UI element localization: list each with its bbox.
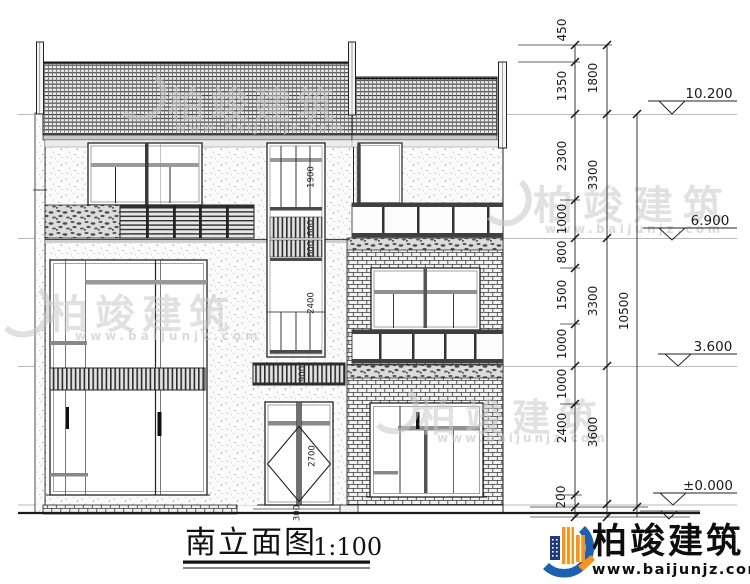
window-2f-right xyxy=(368,268,483,330)
brand-logo: 柏竣建筑 www.baijunjz.com xyxy=(546,521,750,578)
drawing-scale: 1:100 xyxy=(313,533,382,561)
dim-label: 10500 xyxy=(617,292,631,330)
dim-label: 1000 xyxy=(555,204,569,235)
brand-site: www.baijunjz.com xyxy=(592,562,750,578)
dim-label: 3600 xyxy=(586,417,600,448)
dim-label: 1000 xyxy=(555,329,569,360)
window-2f-left xyxy=(86,143,204,205)
balcony-parapet-2f xyxy=(45,205,120,238)
annotation-label: 300 xyxy=(293,505,303,521)
dim-label: 800 xyxy=(555,241,569,264)
dim-chain-3: 10500 xyxy=(617,110,641,517)
annotation-label: 1900 xyxy=(307,166,317,188)
level-label-ground: ±0.000 xyxy=(683,478,733,494)
title-underline-thick xyxy=(183,561,370,564)
entry-door xyxy=(253,402,347,509)
level-label-third: 6.900 xyxy=(691,213,730,229)
dim-label: 3300 xyxy=(586,286,600,317)
dim-label: 1500 xyxy=(555,280,569,311)
elevation-drawing: 柏竣建筑 www.baijunjz.com 柏竣建筑 www.baijunjz.… xyxy=(0,0,750,584)
step-right xyxy=(340,505,358,513)
brand-logo-icon xyxy=(546,527,595,573)
level-markers: 10.200 6.900 3.600 ±0.000 xyxy=(640,86,737,519)
balcony-rail-2f xyxy=(120,205,254,238)
brand-name: 柏竣建筑 xyxy=(592,521,744,562)
glass-rail-2f-right xyxy=(352,330,503,363)
stone-band-upper xyxy=(347,238,503,250)
annotation-label: 2400 xyxy=(307,292,317,314)
door-3f-right xyxy=(358,143,402,205)
elevation-sheet: 柏竣建筑 www.baijunjz.com 柏竣建筑 www.baijunjz.… xyxy=(0,0,750,584)
dim-label: 1000 xyxy=(555,369,569,400)
drawing-title: 南立面图 xyxy=(185,525,317,561)
dim-label: 3300 xyxy=(586,160,600,191)
dim-label: 2300 xyxy=(555,141,569,172)
stone-band-lower xyxy=(347,365,503,378)
glass-rail-3f-right xyxy=(352,203,503,237)
annotation-label: 900 xyxy=(298,366,308,382)
annotation-label: 600 xyxy=(307,220,317,236)
dim-label: 1800 xyxy=(586,63,600,94)
level-label-roof: 10.200 xyxy=(685,86,732,102)
dim-label: 2400 xyxy=(555,413,569,444)
watermark-site: www.baijunjz.com xyxy=(75,329,262,343)
dim-chain-2: 1800 3300 3300 3600 xyxy=(586,41,611,521)
annotation-label: 2700 xyxy=(308,445,318,467)
dim-label: 450 xyxy=(555,19,569,42)
watermark-site: www.baijunjz.com xyxy=(175,121,346,135)
annotation-label: 600 xyxy=(307,241,317,257)
left-pilaster xyxy=(35,113,45,513)
dim-chain-1: 450 1350 2300 1000 800 1500 1000 1000 24… xyxy=(554,19,579,521)
dim-label: 200 xyxy=(554,486,568,509)
watermark-site: www.baijunjz.com xyxy=(437,431,608,445)
level-label-second: 3.600 xyxy=(694,339,733,355)
roof-right xyxy=(352,77,503,147)
title-block: 南立面图 1:100 xyxy=(183,525,382,568)
dim-label: 1350 xyxy=(555,71,569,102)
